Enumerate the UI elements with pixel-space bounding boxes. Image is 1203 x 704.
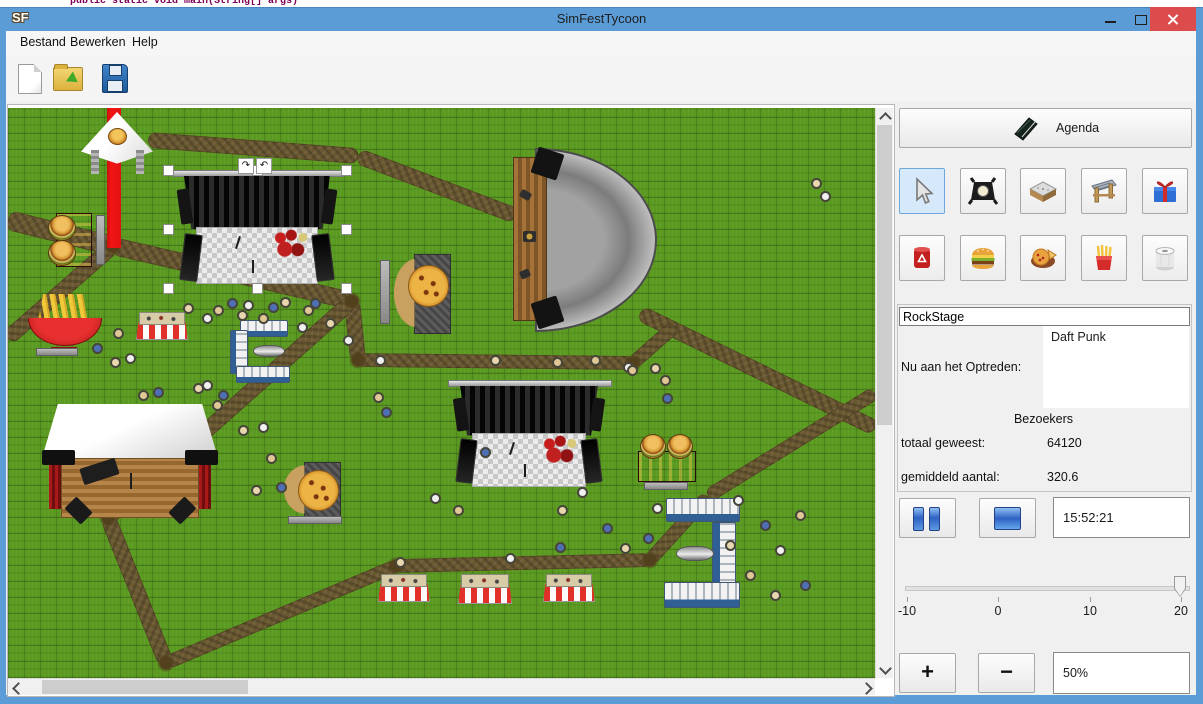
fries-stand[interactable] xyxy=(28,294,100,352)
visitor xyxy=(602,523,613,534)
toilet-row[interactable] xyxy=(666,498,740,522)
gift-icon xyxy=(1150,176,1180,206)
toilet-row[interactable] xyxy=(712,522,736,588)
visitor xyxy=(251,485,262,496)
pipe[interactable] xyxy=(676,546,714,561)
horizontal-scroll-thumb[interactable] xyxy=(42,680,248,694)
window-title: SimFestTycoon xyxy=(0,11,1203,26)
zoom-level-value: 50% xyxy=(1063,666,1088,680)
visitor xyxy=(183,303,194,314)
burger-stand[interactable] xyxy=(48,213,90,265)
visitor xyxy=(557,505,568,516)
average-visitors-value: 320.6 xyxy=(1047,470,1078,484)
close-icon xyxy=(1167,14,1178,25)
burger-stand[interactable] xyxy=(638,434,694,480)
market-stand[interactable] xyxy=(378,574,428,600)
slider-label-zero: 0 xyxy=(980,604,1016,618)
visitor xyxy=(760,520,771,531)
now-performing-label: Nu aan het Optreden: xyxy=(901,360,1021,374)
path-junction xyxy=(641,551,659,569)
tool-stage[interactable] xyxy=(1020,168,1066,214)
visitor xyxy=(343,335,354,346)
menu-bar: Bestand Bewerken Help xyxy=(6,31,1196,56)
map-vertical-scrollbar[interactable] xyxy=(875,108,893,678)
scroll-up-icon[interactable] xyxy=(879,112,892,125)
rotate-icon[interactable]: ↶ xyxy=(256,158,272,174)
visitor xyxy=(733,495,744,506)
tool-burger[interactable] xyxy=(960,235,1006,281)
visitor xyxy=(138,390,149,401)
bench[interactable] xyxy=(96,215,105,265)
visitor xyxy=(430,493,441,504)
visitor xyxy=(820,191,831,202)
zoom-out-button[interactable]: − xyxy=(978,653,1035,693)
slider-label-ten: 10 xyxy=(1072,604,1108,618)
visitor xyxy=(395,557,406,568)
map-canvas[interactable]: ↷↶ xyxy=(8,108,875,678)
scroll-left-icon[interactable] xyxy=(12,682,25,695)
new-document-button[interactable] xyxy=(14,61,48,97)
pipe[interactable] xyxy=(253,345,285,357)
slider-tick xyxy=(998,597,999,602)
sidebar: Agenda xyxy=(897,104,1192,695)
footpath xyxy=(101,515,174,666)
save-floppy-icon xyxy=(102,64,128,93)
slider-label-max: 20 xyxy=(1163,604,1199,618)
footpath xyxy=(163,560,398,670)
visitor xyxy=(113,328,124,339)
toolbar xyxy=(6,55,1196,101)
footpath xyxy=(355,149,519,224)
slider-tick xyxy=(907,597,908,602)
agenda-button[interactable]: Agenda xyxy=(899,108,1192,148)
visitor xyxy=(480,447,491,458)
visitor xyxy=(375,355,386,366)
visitor xyxy=(552,357,563,368)
speed-slider-thumb[interactable] xyxy=(1174,576,1186,597)
simfesttycoon-window: { "background_code": "public static void… xyxy=(0,0,1203,704)
path-junction xyxy=(349,351,367,369)
average-visitors-label: gemiddeld aantal: xyxy=(901,470,1000,484)
selection-handle[interactable] xyxy=(341,165,352,176)
cursor-icon xyxy=(907,176,937,206)
dome-stage[interactable] xyxy=(513,148,653,328)
pause-icon xyxy=(913,507,924,531)
gate-icon xyxy=(1089,176,1119,206)
visitor xyxy=(725,540,736,551)
vertical-scroll-thumb[interactable] xyxy=(877,125,892,425)
plus-icon: + xyxy=(900,659,955,685)
stop-button[interactable] xyxy=(979,498,1036,538)
selection-handle[interactable] xyxy=(341,224,352,235)
food-tent[interactable] xyxy=(81,112,153,180)
zoom-level-field[interactable]: 50% xyxy=(1053,652,1190,694)
footpath xyxy=(396,553,650,573)
visitor xyxy=(243,300,254,311)
window-border-left xyxy=(0,31,6,704)
burger-icon xyxy=(968,243,998,273)
selection-handle[interactable] xyxy=(163,224,174,235)
visitor xyxy=(218,390,229,401)
tool-fries[interactable] xyxy=(1081,235,1127,281)
maximize-icon xyxy=(1135,15,1147,25)
fries-icon xyxy=(1089,243,1119,273)
visitor xyxy=(110,357,121,368)
visitor xyxy=(92,343,103,354)
visitor xyxy=(213,305,224,316)
speed-slider-track[interactable] xyxy=(905,586,1190,591)
background-code-text: public static void main(String[] args) xyxy=(70,0,298,7)
toilet-roll-icon xyxy=(1150,243,1180,273)
selection-handle[interactable] xyxy=(163,165,174,176)
bench[interactable] xyxy=(644,482,688,490)
visitor xyxy=(650,363,661,374)
open-file-button[interactable] xyxy=(52,61,86,97)
market-stand[interactable] xyxy=(458,574,510,602)
visitor xyxy=(745,570,756,581)
spotlight-icon xyxy=(968,176,998,206)
selection-handle[interactable] xyxy=(163,283,174,294)
visitor xyxy=(577,487,588,498)
minimize-icon xyxy=(1105,21,1116,23)
clock-display: 15:52:21 xyxy=(1053,497,1190,538)
visitor xyxy=(212,400,223,411)
visitor xyxy=(258,422,269,433)
rotate-icon[interactable]: ↷ xyxy=(238,158,254,174)
pause-icon xyxy=(929,507,940,531)
visitor xyxy=(620,543,631,554)
total-visitors-label: totaal geweest: xyxy=(901,436,985,450)
toilet-row[interactable] xyxy=(664,582,740,608)
tool-gift[interactable] xyxy=(1142,168,1188,214)
visitor xyxy=(325,318,336,329)
pizza-stand[interactable] xyxy=(394,254,456,332)
market-stand[interactable] xyxy=(543,574,593,600)
visitor xyxy=(258,313,269,324)
visitor xyxy=(555,542,566,553)
tool-select[interactable] xyxy=(899,168,945,214)
map-horizontal-scrollbar[interactable] xyxy=(8,678,875,695)
visitor xyxy=(202,380,213,391)
total-visitors-value: 64120 xyxy=(1047,436,1082,450)
visitor xyxy=(643,533,654,544)
visitor xyxy=(453,505,464,516)
visitor xyxy=(662,393,673,404)
zoom-in-button[interactable]: + xyxy=(899,653,956,693)
visitor xyxy=(811,178,822,189)
visitor xyxy=(202,313,213,324)
background-ide-sliver: public static void main(String[] args) xyxy=(0,0,1203,7)
now-performing-value: Daft Punk xyxy=(1051,330,1106,344)
bench[interactable] xyxy=(36,348,78,356)
slider-tick xyxy=(1090,597,1091,602)
slider-tick xyxy=(1181,597,1182,602)
tool-spotlight[interactable] xyxy=(960,168,1006,214)
visitor xyxy=(373,392,384,403)
menu-bewerken[interactable]: Bewerken xyxy=(64,35,132,49)
bench[interactable] xyxy=(380,260,390,324)
visitor xyxy=(238,425,249,436)
minus-icon: − xyxy=(979,659,1034,685)
visitor xyxy=(125,353,136,364)
acoustic-stage[interactable] xyxy=(42,404,218,519)
close-button[interactable] xyxy=(1150,7,1196,31)
visitor xyxy=(795,510,806,521)
visitor xyxy=(266,453,277,464)
pizza-icon xyxy=(1028,243,1058,273)
visitor xyxy=(381,407,392,418)
bench[interactable] xyxy=(288,516,342,524)
visitor xyxy=(280,297,291,308)
footpath xyxy=(704,387,875,502)
visitor xyxy=(770,590,781,601)
toilet-row[interactable] xyxy=(236,366,290,383)
visitor xyxy=(775,545,786,556)
visitor xyxy=(627,365,638,376)
tool-pizza[interactable] xyxy=(1020,235,1066,281)
visitor xyxy=(153,387,164,398)
visitor xyxy=(490,355,501,366)
visitors-heading: Bezoekers xyxy=(897,412,1190,426)
agenda-label: Agenda xyxy=(1056,121,1099,135)
stop-icon xyxy=(994,507,1021,530)
visitor xyxy=(590,355,601,366)
trash-bin-icon xyxy=(907,243,937,273)
visitor xyxy=(652,503,663,514)
pause-button[interactable] xyxy=(899,498,956,538)
minimize-button[interactable] xyxy=(1096,7,1126,31)
tool-toilet[interactable] xyxy=(1142,235,1188,281)
tool-trash-bin[interactable] xyxy=(899,235,945,281)
tool-entrance-gate[interactable] xyxy=(1081,168,1127,214)
stage-platform-icon xyxy=(1028,176,1058,206)
clock-value: 15:52:21 xyxy=(1063,510,1114,525)
path-junction xyxy=(157,654,175,672)
pizza-table[interactable] xyxy=(284,462,346,517)
selection-handle[interactable] xyxy=(341,283,352,294)
scroll-right-icon[interactable] xyxy=(860,682,873,695)
rock-stage[interactable] xyxy=(168,170,346,288)
visitor xyxy=(310,298,321,309)
stage-name-input[interactable] xyxy=(899,307,1190,326)
visitor xyxy=(660,375,671,386)
visitor xyxy=(800,580,811,591)
agenda-book-icon xyxy=(1012,114,1040,142)
visitor xyxy=(227,298,238,309)
path-junction xyxy=(343,292,361,310)
visitor xyxy=(237,310,248,321)
selection-handle[interactable] xyxy=(252,283,263,294)
visitor xyxy=(297,322,308,333)
visitor xyxy=(268,302,279,313)
market-stand[interactable] xyxy=(136,312,186,338)
now-performing-box: Daft Punk xyxy=(1043,326,1189,408)
slider-label-min: -10 xyxy=(889,604,925,618)
visitor xyxy=(276,482,287,493)
menu-help[interactable]: Help xyxy=(126,35,164,49)
save-file-button[interactable] xyxy=(98,61,132,97)
visitor xyxy=(505,553,516,564)
main-stage[interactable] xyxy=(445,380,613,490)
scroll-down-icon[interactable] xyxy=(879,662,892,675)
new-document-icon xyxy=(18,64,42,94)
